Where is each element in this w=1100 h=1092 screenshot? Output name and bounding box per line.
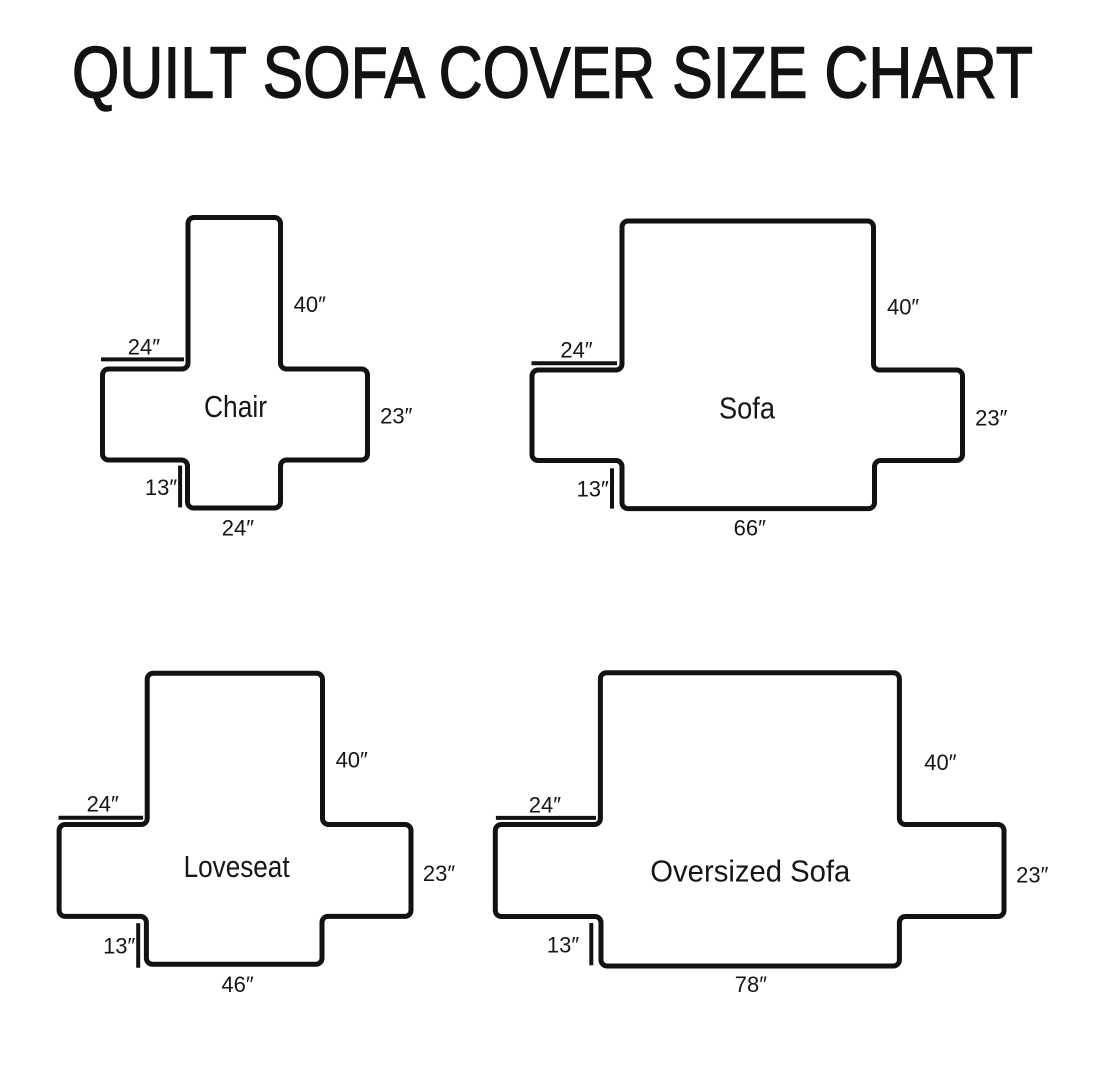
svg-text:Sofa: Sofa <box>719 392 775 426</box>
svg-text:23″: 23″ <box>975 405 1007 430</box>
svg-text:24″: 24″ <box>560 337 592 362</box>
svg-text:46″: 46″ <box>221 972 253 997</box>
svg-text:40″: 40″ <box>336 748 368 773</box>
svg-text:24″: 24″ <box>222 516 254 541</box>
svg-text:23″: 23″ <box>1016 862 1048 887</box>
svg-text:13″: 13″ <box>145 475 177 500</box>
svg-text:40″: 40″ <box>924 750 956 775</box>
svg-text:40″: 40″ <box>294 292 326 317</box>
svg-text:66″: 66″ <box>734 516 766 541</box>
svg-text:24″: 24″ <box>128 334 160 359</box>
svg-text:23″: 23″ <box>380 404 412 429</box>
svg-text:Oversized Sofa: Oversized Sofa <box>650 855 850 889</box>
svg-text:QUILT SOFA COVER SIZE CHART: QUILT SOFA COVER SIZE CHART <box>72 34 1033 114</box>
svg-text:78″: 78″ <box>735 972 767 997</box>
svg-text:24″: 24″ <box>87 791 119 816</box>
svg-text:24″: 24″ <box>529 792 561 817</box>
svg-text:13″: 13″ <box>577 476 609 501</box>
svg-text:13″: 13″ <box>103 933 135 958</box>
svg-text:13″: 13″ <box>547 932 579 957</box>
svg-text:Loveseat: Loveseat <box>184 850 290 884</box>
svg-text:23″: 23″ <box>423 861 455 886</box>
svg-text:Chair: Chair <box>204 390 267 424</box>
svg-text:40″: 40″ <box>887 294 919 319</box>
